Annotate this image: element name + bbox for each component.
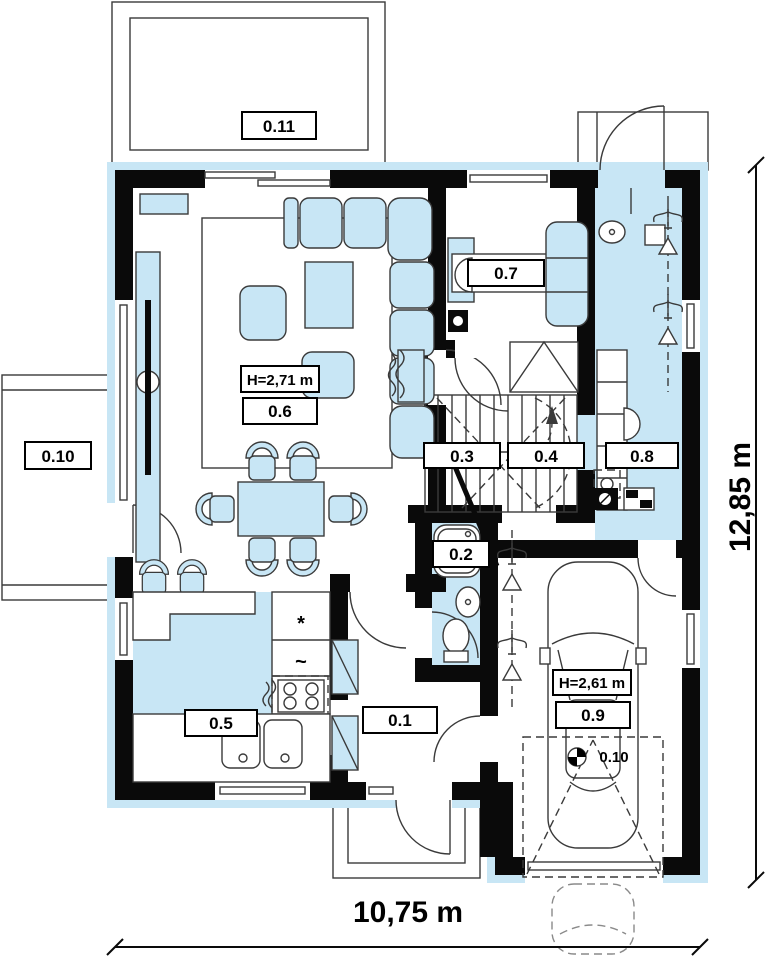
label-0-9: 0.9 <box>581 706 605 725</box>
label-0-2: 0.2 <box>449 545 473 564</box>
dimension-bottom: 10,75 m <box>107 896 708 955</box>
wardrobe-07 <box>510 342 578 392</box>
label-0-5: 0.5 <box>209 714 233 733</box>
garage-gate <box>525 857 663 883</box>
label-0-8: 0.8 <box>630 447 654 466</box>
label-0-1: 0.1 <box>388 711 412 730</box>
door-stairs-entry <box>502 505 556 523</box>
floor-drain <box>645 225 665 245</box>
terrace-left <box>2 375 112 600</box>
dimension-depth: 12,85 m <box>724 442 757 552</box>
window-right-corridor <box>682 300 700 352</box>
rear-porch <box>333 802 480 878</box>
car-outside-ghost <box>552 884 634 954</box>
window-bottom-hall <box>366 782 396 800</box>
tv-cabinet <box>136 252 160 562</box>
entry-porch <box>578 112 708 170</box>
label-0-3: 0.3 <box>450 447 474 466</box>
bathroom-sink <box>456 587 480 617</box>
label-0-4: 0.4 <box>534 447 558 466</box>
window-top <box>467 170 550 188</box>
label-0-10-terrace: 0.10 <box>41 447 74 466</box>
label-0-11: 0.11 <box>263 117 295 136</box>
label-height-garage: H=2,61 m <box>559 675 625 692</box>
label-0-7: 0.7 <box>494 264 518 283</box>
toilet <box>443 619 469 662</box>
label-0-6: 0.6 <box>268 402 292 421</box>
flue-box <box>448 310 468 332</box>
armchair-1 <box>240 286 286 340</box>
parking-label: 0.10 <box>599 749 628 766</box>
window-right-garage <box>682 610 700 668</box>
dining-table <box>238 482 324 536</box>
floor-plan-page: * ~ <box>0 0 777 960</box>
floor-plan-svg: * ~ <box>0 0 777 960</box>
window-bottom-kitchen <box>215 782 310 800</box>
shelf <box>140 194 188 214</box>
fridge-symbol: * <box>297 613 305 635</box>
dimension-width: 10,75 m <box>353 896 463 929</box>
rear-door <box>396 782 452 854</box>
coffee-table <box>305 262 353 328</box>
level-marker <box>568 748 586 766</box>
label-height-living: H=2,71 m <box>247 372 313 389</box>
dishwasher-symbol: ~ <box>295 651 307 673</box>
window-left-living <box>115 300 133 505</box>
window-left-kitchen <box>115 598 133 660</box>
car-mirror-right <box>636 648 646 664</box>
couch-07 <box>546 222 588 326</box>
terrace-top <box>112 2 385 168</box>
dimension-right: 12,85 m <box>724 157 764 888</box>
entry-basin <box>599 221 625 243</box>
patio-slider-door <box>205 170 330 188</box>
car-mirror-left <box>540 648 550 664</box>
